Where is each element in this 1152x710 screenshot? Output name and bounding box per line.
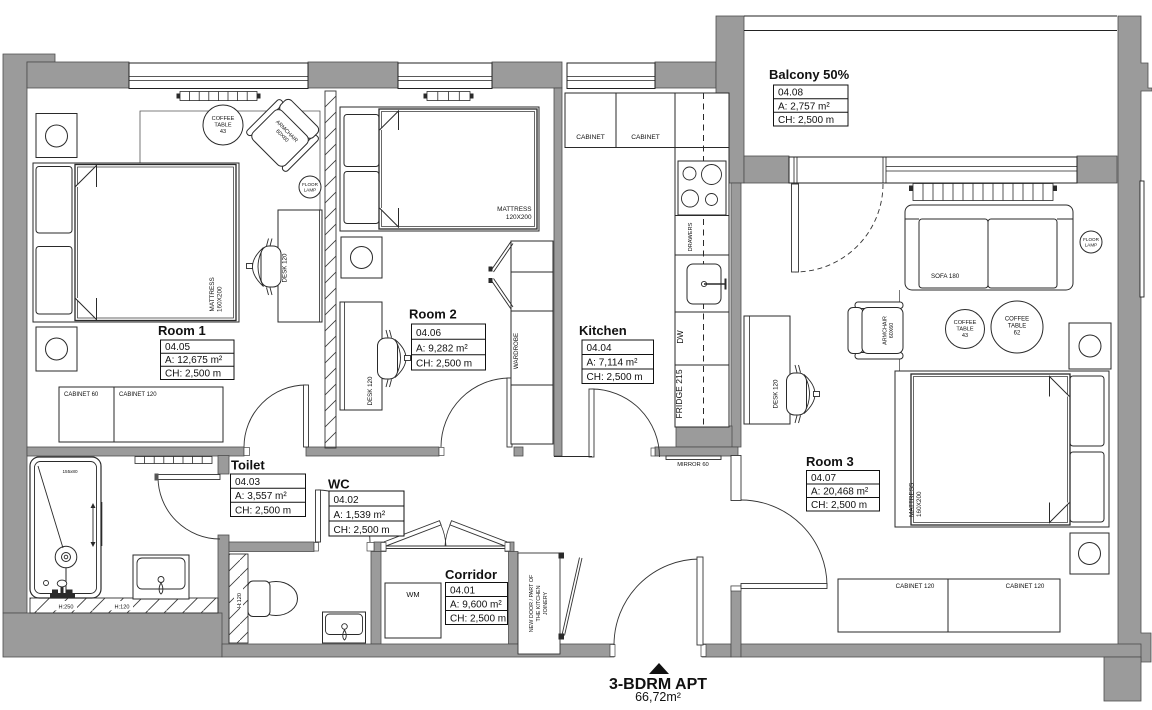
svg-text:MATTRESS: MATTRESS: [909, 483, 916, 517]
svg-text:FLOOR: FLOOR: [302, 182, 319, 187]
svg-text:CH: 2,500 m: CH: 2,500 m: [450, 614, 506, 625]
svg-text:A: 2,757 m²: A: 2,757 m²: [778, 101, 830, 112]
svg-text:MIRROR 60: MIRROR 60: [677, 462, 709, 468]
svg-text:CABINET: CABINET: [576, 134, 605, 141]
svg-text:FLOOR: FLOOR: [1083, 237, 1100, 242]
svg-text:Corridor: Corridor: [445, 567, 497, 582]
svg-text:JOINERY: JOINERY: [543, 591, 549, 615]
svg-text:04.02: 04.02: [334, 495, 359, 506]
svg-text:SOFA 180: SOFA 180: [931, 273, 960, 280]
svg-text:TABLE: TABLE: [1008, 324, 1027, 330]
svg-text:CH: 2,500 m: CH: 2,500 m: [587, 372, 643, 383]
svg-text:04.01: 04.01: [450, 586, 475, 597]
svg-text:LAMP: LAMP: [304, 188, 317, 193]
svg-text:TABLE: TABLE: [956, 327, 974, 333]
svg-text:CH: 2,500 m: CH: 2,500 m: [334, 525, 390, 536]
svg-text:04.05: 04.05: [165, 342, 190, 353]
svg-text:COFFEE: COFFEE: [1005, 317, 1029, 323]
svg-text:155x80: 155x80: [62, 469, 78, 474]
svg-text:MATTRESS: MATTRESS: [497, 206, 531, 213]
svg-text:COFFEE: COFFEE: [212, 116, 235, 122]
svg-text:66,72m²: 66,72m²: [635, 690, 681, 704]
svg-text:CH: 2,500 m: CH: 2,500 m: [416, 359, 472, 370]
svg-text:DESK 120: DESK 120: [773, 379, 780, 408]
svg-text:62: 62: [1014, 331, 1021, 337]
svg-text:A: 9,282 m²: A: 9,282 m²: [416, 343, 468, 354]
svg-text:160X200: 160X200: [916, 491, 923, 517]
svg-text:Kitchen: Kitchen: [579, 323, 627, 338]
svg-text:H:120: H:120: [115, 605, 130, 611]
svg-text:43: 43: [220, 129, 226, 135]
svg-text:43: 43: [962, 333, 968, 339]
svg-text:04.07: 04.07: [811, 473, 836, 484]
svg-text:TABLE: TABLE: [214, 123, 232, 129]
svg-text:Room 1: Room 1: [158, 323, 206, 338]
svg-text:DESK 120: DESK 120: [367, 376, 374, 405]
svg-text:CABINET 120: CABINET 120: [896, 583, 935, 590]
svg-text:WC: WC: [328, 477, 350, 492]
svg-text:CABINET: CABINET: [631, 134, 660, 141]
svg-text:Room 2: Room 2: [409, 307, 457, 322]
svg-text:WM: WM: [406, 590, 419, 599]
svg-text:CH: 2,500 m: CH: 2,500 m: [235, 505, 291, 516]
svg-text:04.08: 04.08: [778, 88, 803, 99]
svg-text:WARDROBE: WARDROBE: [513, 333, 520, 369]
svg-text:NEW DOOR / PART OF: NEW DOOR / PART OF: [529, 574, 535, 632]
svg-text:04.03: 04.03: [235, 477, 260, 488]
svg-text:Room 3: Room 3: [806, 454, 854, 469]
svg-text:H:250: H:250: [59, 605, 74, 611]
svg-text:04.06: 04.06: [416, 328, 441, 339]
svg-text:CH: 2,500 m: CH: 2,500 m: [778, 115, 834, 126]
svg-text:A: 12,675 m²: A: 12,675 m²: [165, 355, 223, 366]
svg-text:A: 1,539 m²: A: 1,539 m²: [334, 510, 386, 521]
svg-text:120X200: 120X200: [506, 214, 532, 221]
svg-text:LAMP: LAMP: [1085, 243, 1098, 248]
svg-text:COFFEE: COFFEE: [954, 320, 977, 326]
svg-text:160X200: 160X200: [217, 286, 224, 312]
svg-text:H:120: H:120: [237, 593, 243, 608]
svg-text:MATTRESS: MATTRESS: [209, 277, 216, 311]
svg-text:DESK 120: DESK 120: [282, 253, 289, 282]
svg-text:CH: 2,500 m: CH: 2,500 m: [811, 500, 867, 511]
svg-text:FRIDGE 215: FRIDGE 215: [674, 369, 684, 418]
svg-text:DRAWERS: DRAWERS: [688, 222, 694, 251]
svg-text:A: 20,468 m²: A: 20,468 m²: [811, 487, 869, 498]
svg-text:CABINET 60: CABINET 60: [64, 392, 99, 398]
svg-text:04.04: 04.04: [587, 343, 612, 354]
svg-text:CABINET 120: CABINET 120: [119, 392, 157, 398]
svg-text:A: 9,600 m²: A: 9,600 m²: [450, 600, 502, 611]
svg-text:A: 3,557 m²: A: 3,557 m²: [235, 491, 287, 502]
svg-text:THE KITCHEN: THE KITCHEN: [536, 585, 542, 621]
svg-text:CH: 2,500 m: CH: 2,500 m: [165, 368, 221, 379]
svg-text:CABINET 120: CABINET 120: [1006, 583, 1045, 590]
svg-text:Balcony 50%: Balcony 50%: [769, 67, 850, 82]
svg-text:Toilet: Toilet: [231, 458, 265, 473]
svg-text:A: 7,114 m²: A: 7,114 m²: [587, 358, 639, 369]
svg-text:DW: DW: [676, 330, 685, 344]
